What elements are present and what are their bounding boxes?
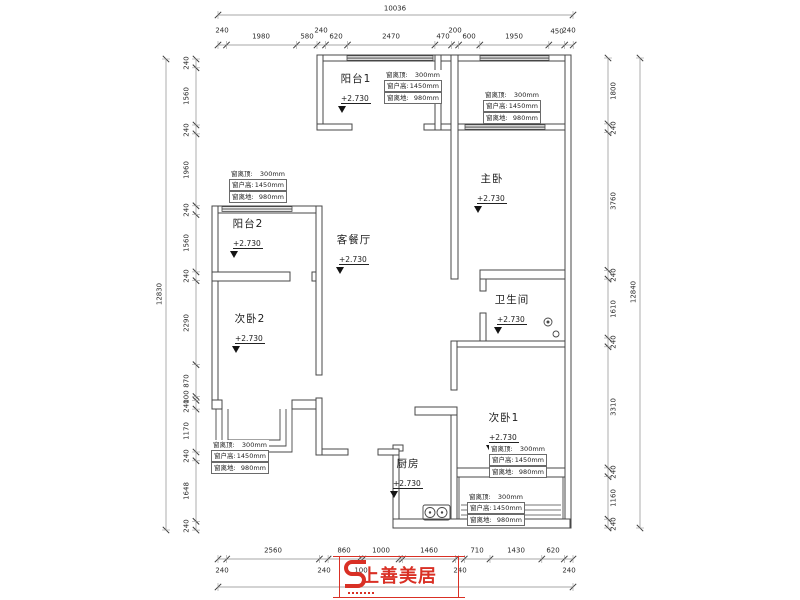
room-level: +2.730	[393, 479, 423, 489]
note-label: 窗户高:	[492, 455, 514, 465]
dim-label: 470	[436, 34, 449, 41]
dim-total-left: 12830	[157, 283, 164, 305]
floor-plan-page: 10036 12830 12840 2401980580240620247047…	[0, 0, 800, 600]
dim-label: 240	[314, 28, 327, 35]
room-bed2: 次卧2 +2.730	[222, 314, 278, 353]
level-marker-icon	[338, 106, 346, 113]
dim-label: 1800	[611, 82, 618, 100]
dim-label: 240	[562, 28, 575, 35]
logo-dashes	[348, 592, 374, 594]
dim-label: 200	[448, 28, 461, 35]
room-level: +2.730	[477, 194, 507, 204]
dim-label: 2560	[264, 548, 282, 555]
dim-label: 1960	[184, 161, 191, 179]
room-kitchen: 厨房 +2.730	[380, 459, 436, 498]
note-label: 窗离地:	[492, 467, 514, 477]
note-value: 980mm	[497, 515, 522, 525]
note-label: 窗离顶:	[386, 70, 408, 80]
dim-label: 240	[611, 121, 618, 134]
dim-label: 240	[611, 465, 618, 478]
dim-label: 240	[215, 568, 228, 575]
note-label: 窗离顶:	[491, 444, 513, 454]
stamp-corner-mark	[459, 597, 465, 598]
note-label: 窗户高:	[470, 503, 492, 513]
dim-label: 1160	[611, 489, 618, 507]
room-name: 厨房	[380, 459, 436, 471]
dim-label: 3760	[611, 192, 618, 210]
dim-label: 240	[184, 519, 191, 532]
dim-label: 2470	[382, 34, 400, 41]
dim-total-top: 10036	[384, 6, 406, 13]
dim-label: 240	[215, 28, 228, 35]
note-label: 窗离顶:	[469, 492, 491, 502]
kitchen-sink	[423, 505, 450, 520]
dim-label: 710	[470, 548, 483, 555]
window-note-balcony1: 窗离顶:300mm 窗户高:1450mm 窗离地:980mm	[384, 70, 442, 104]
dim-label: 1430	[507, 548, 525, 555]
room-master: 主卧 +2.730	[464, 174, 520, 213]
note-label: 窗户高:	[214, 451, 236, 461]
note-value: 300mm	[242, 440, 267, 450]
room-name: 卫生间	[484, 295, 540, 307]
note-value: 300mm	[498, 492, 523, 502]
note-value: 980mm	[241, 463, 266, 473]
note-label: 窗离地:	[232, 192, 254, 202]
room-level: +2.730	[339, 255, 369, 265]
dim-label: 1460	[420, 548, 438, 555]
note-value: 1450mm	[515, 455, 544, 465]
dim-label: 2290	[184, 314, 191, 332]
room-level: +2.730	[341, 94, 371, 104]
window-note-master: 窗离顶:300mm 窗户高:1450mm 窗离地:980mm	[483, 90, 541, 124]
dim-label: 240	[611, 268, 618, 281]
dim-label: 1170	[184, 422, 191, 440]
note-label: 窗离顶:	[213, 440, 235, 450]
window-note-bed1: 窗离顶:300mm 窗户高:1450mm 窗离地:980mm	[489, 444, 547, 478]
dim-label: 240	[611, 335, 618, 348]
dim-label: 1648	[184, 482, 191, 500]
dim-label: 1980	[252, 34, 270, 41]
room-name: 次卧1	[476, 413, 532, 425]
level-marker-icon	[232, 346, 240, 353]
brand-logo-icon	[340, 557, 368, 589]
dim-label: 600	[462, 34, 475, 41]
note-value: 1450mm	[237, 451, 266, 461]
room-name: 客餐厅	[326, 235, 382, 247]
note-value: 300mm	[520, 444, 545, 454]
level-marker-icon	[230, 251, 238, 258]
dim-label: 240	[184, 269, 191, 282]
note-value: 1450mm	[493, 503, 522, 513]
room-level: +2.730	[497, 315, 527, 325]
dim-total-right: 12840	[631, 281, 638, 303]
note-value: 1450mm	[410, 81, 439, 91]
dim-label: 240	[184, 449, 191, 462]
dim-label: 240	[184, 203, 191, 216]
window-note-bed2: 窗离顶:300mm 窗户高:1450mm 窗离地:980mm	[211, 440, 269, 474]
window-note-balcony2: 窗离顶:300mm 窗户高:1450mm 窗离地:980mm	[229, 169, 287, 203]
room-level: +2.730	[233, 239, 263, 249]
dim-label: 240	[611, 517, 618, 530]
room-living: 客餐厅 +2.730	[326, 235, 382, 274]
brand-stamp: 上善美居	[339, 556, 459, 598]
note-label: 窗户高:	[486, 101, 508, 111]
dim-label: 240	[317, 568, 330, 575]
room-level: +2.730	[489, 433, 519, 443]
floor-drain	[544, 318, 559, 337]
note-value: 300mm	[260, 169, 285, 179]
note-label: 窗离地:	[387, 93, 409, 103]
dim-label: 620	[546, 548, 559, 555]
window-note-bay: 窗离顶:300mm 窗户高:1450mm 窗离地:980mm	[467, 492, 525, 526]
note-value: 300mm	[514, 90, 539, 100]
dim-label: 1950	[505, 34, 523, 41]
room-bath: 卫生间 +2.730	[484, 295, 540, 334]
room-name: 阳台2	[220, 219, 276, 231]
note-label: 窗离地:	[214, 463, 236, 473]
dim-label: 620	[329, 34, 342, 41]
brand-name: 上善美居	[361, 568, 437, 586]
note-value: 1450mm	[255, 180, 284, 190]
room-name: 阳台1	[328, 74, 384, 86]
level-marker-icon	[336, 267, 344, 274]
dim-label: 1560	[184, 234, 191, 252]
dim-label: 240	[184, 123, 191, 136]
note-label: 窗离顶:	[485, 90, 507, 100]
note-label: 窗离地:	[470, 515, 492, 525]
note-value: 300mm	[415, 70, 440, 80]
dim-label: 580	[300, 34, 313, 41]
note-value: 1450mm	[509, 101, 538, 111]
note-label: 窗户高:	[232, 180, 254, 190]
dim-label: 870	[184, 374, 191, 387]
note-label: 窗离顶:	[231, 169, 253, 179]
note-label: 窗离地:	[486, 113, 508, 123]
dim-label: 240	[562, 568, 575, 575]
dim-label: 240	[184, 56, 191, 69]
dim-label: 1610	[611, 300, 618, 318]
stamp-corner-mark	[333, 556, 339, 557]
room-name: 次卧2	[222, 314, 278, 326]
level-marker-icon	[494, 327, 502, 334]
dim-label: 3310	[611, 398, 618, 416]
room-balcony2: 阳台2 +2.730	[220, 219, 276, 258]
note-value: 980mm	[259, 192, 284, 202]
note-value: 980mm	[519, 467, 544, 477]
dim-label: 240	[184, 399, 191, 412]
note-value: 980mm	[414, 93, 439, 103]
note-value: 980mm	[513, 113, 538, 123]
room-name: 主卧	[464, 174, 520, 186]
dim-label: 860	[337, 548, 350, 555]
room-level: +2.730	[235, 334, 265, 344]
room-balcony1: 阳台1 +2.730	[328, 74, 384, 113]
level-marker-icon	[474, 206, 482, 213]
stamp-corner-mark	[333, 597, 339, 598]
dim-label: 1000	[372, 548, 390, 555]
dim-label: 1560	[184, 87, 191, 105]
stamp-corner-mark	[459, 556, 465, 557]
level-marker-icon	[390, 491, 398, 498]
note-label: 窗户高:	[387, 81, 409, 91]
